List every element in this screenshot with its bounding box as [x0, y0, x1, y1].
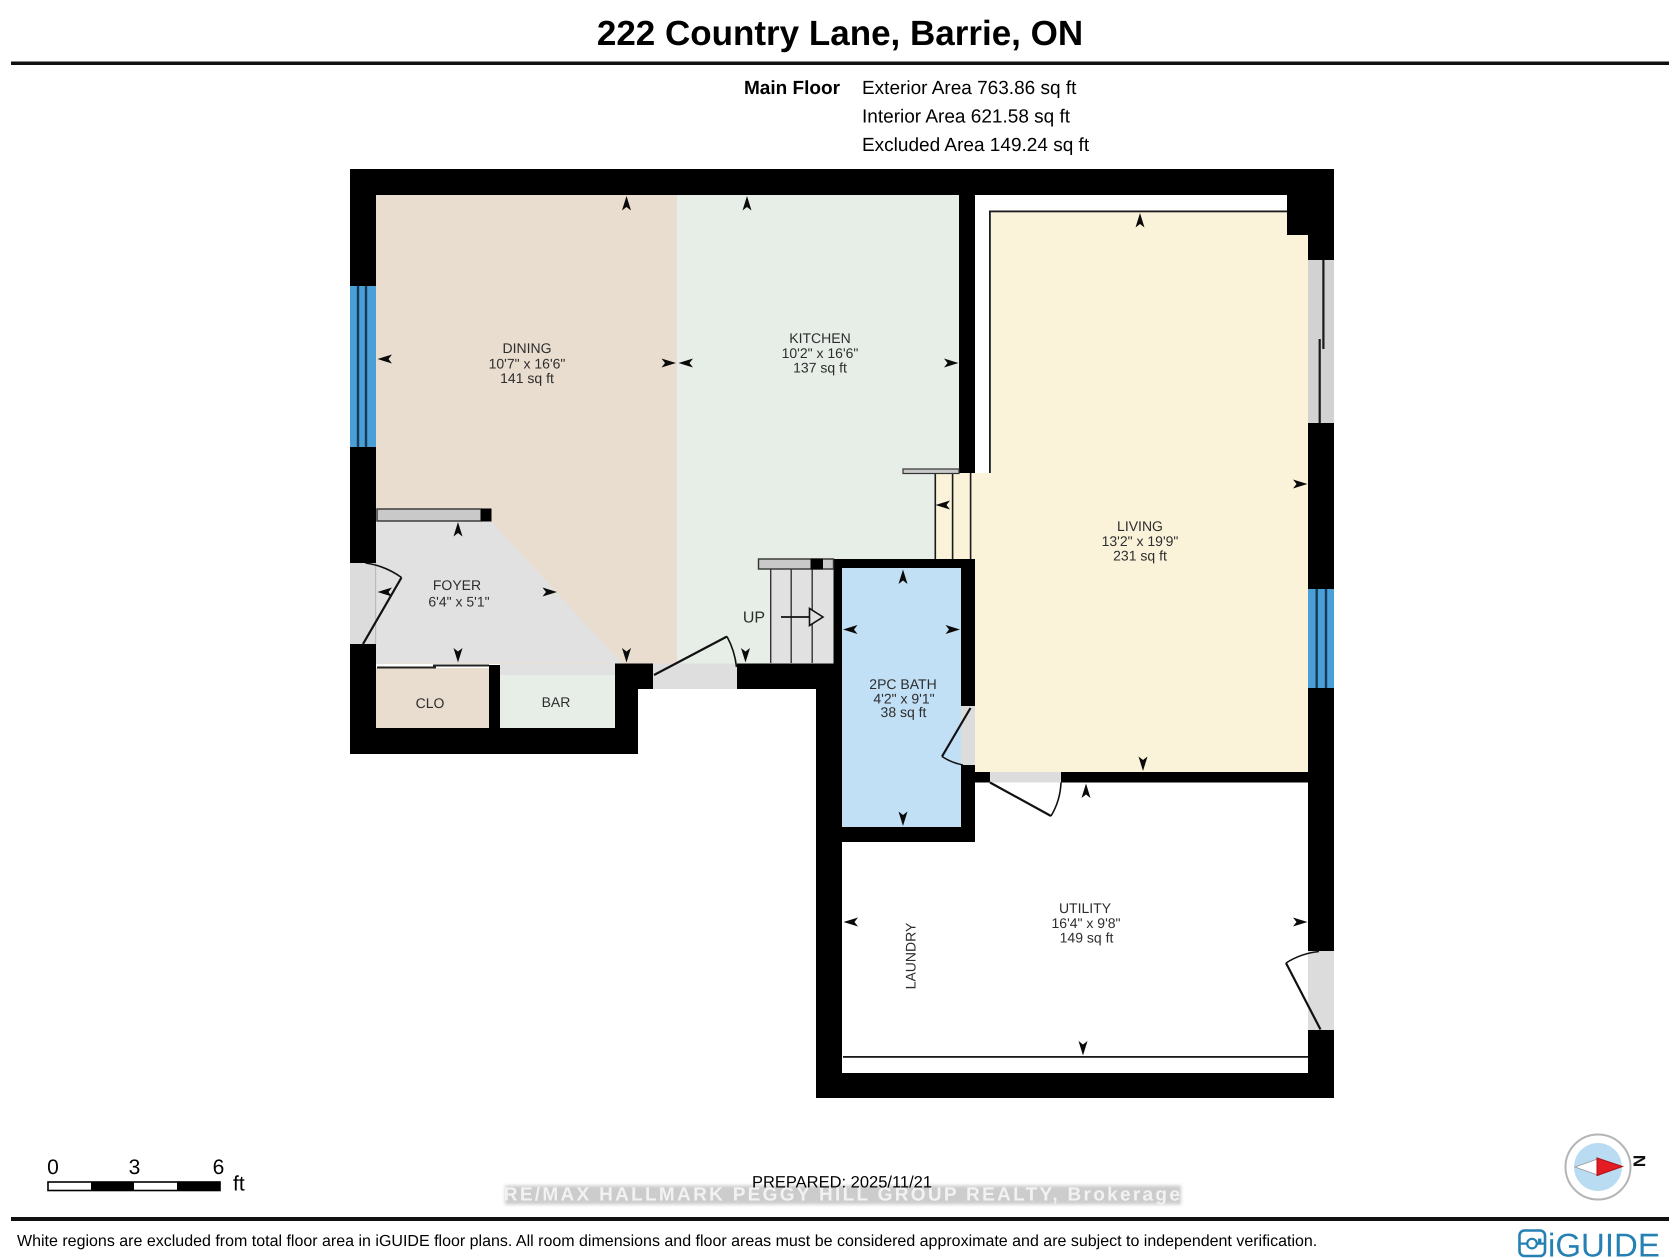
svg-text:BAR: BAR: [542, 694, 571, 710]
svg-text:N: N: [1630, 1155, 1649, 1167]
svg-text:UTILITY: UTILITY: [1059, 900, 1112, 916]
svg-text:FOYER: FOYER: [433, 577, 481, 593]
svg-text:Main Floor: Main Floor: [744, 78, 841, 99]
svg-text:222 Country Lane, Barrie, ON: 222 Country Lane, Barrie, ON: [597, 14, 1083, 53]
svg-text:UP: UP: [743, 610, 765, 627]
svg-text:141 sq ft: 141 sq ft: [500, 370, 554, 386]
svg-text:3: 3: [129, 1156, 141, 1179]
svg-text:LAUNDRY: LAUNDRY: [903, 922, 919, 989]
svg-text:iGUIDE: iGUIDE: [1548, 1227, 1660, 1258]
svg-text:Interior Area 621.58 sq ft: Interior Area 621.58 sq ft: [862, 107, 1071, 128]
svg-text:DINING: DINING: [503, 340, 552, 356]
svg-text:137 sq ft: 137 sq ft: [793, 360, 847, 376]
svg-text:231 sq ft: 231 sq ft: [1113, 548, 1167, 564]
svg-text:KITCHEN: KITCHEN: [789, 330, 850, 346]
svg-text:0: 0: [47, 1156, 59, 1179]
svg-text:PREPARED: 2025/11/21: PREPARED: 2025/11/21: [752, 1174, 932, 1192]
svg-text:ft: ft: [233, 1173, 245, 1196]
svg-text:Exterior Area 763.86 sq ft: Exterior Area 763.86 sq ft: [862, 78, 1077, 99]
svg-text:Excluded Area 149.24 sq ft: Excluded Area 149.24 sq ft: [862, 135, 1090, 156]
svg-text:LIVING: LIVING: [1117, 518, 1163, 534]
svg-text:6'4" x 5'1": 6'4" x 5'1": [428, 594, 489, 610]
svg-text:CLO: CLO: [416, 695, 445, 711]
svg-text:6: 6: [213, 1156, 225, 1179]
svg-text:White regions are excluded fro: White regions are excluded from total fl…: [17, 1233, 1317, 1250]
svg-text:38 sq ft: 38 sq ft: [881, 704, 927, 720]
svg-text:149 sq ft: 149 sq ft: [1060, 930, 1114, 946]
